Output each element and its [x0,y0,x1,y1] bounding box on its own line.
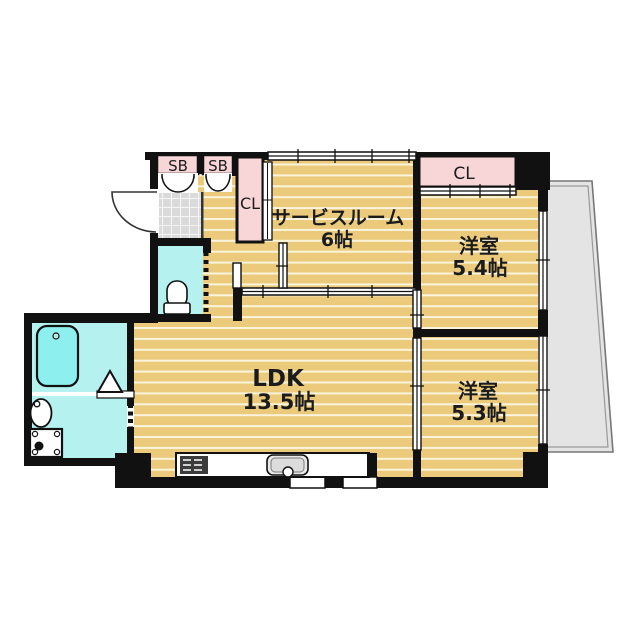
wall-right-1 [538,158,548,211]
ldk-area: 13.5帖 [243,390,316,414]
wall-toilet-right-top [203,238,211,253]
kitchen-sink-drain [283,467,293,477]
pan-corner-1 [32,431,37,436]
wall-bottom [115,477,548,488]
wall-washroom-bottom [24,458,117,466]
wall-right-3 [538,444,548,488]
wall-post-hall [233,288,242,321]
pan-corner-4 [54,449,59,454]
entrance-door-arc [112,192,157,232]
pan-drain [35,442,44,451]
window-bedroom1-tick [536,211,550,310]
pan-corner-3 [32,449,37,454]
service-room-area: 6帖 [321,228,353,251]
wall-genkan-toilet [150,238,206,246]
genkan-step-edge [201,192,204,238]
pan-corner-2 [54,431,59,436]
balcony [548,181,613,452]
washbasin-faucet [34,401,40,407]
kitchen-counter-end [367,453,377,477]
hall-door-panel [233,263,241,288]
floor-plan-page: SB SB CL CL サービスルーム 6帖 洋室 5.4帖 洋室 5.3帖 L… [0,0,640,640]
bathtub-drain [53,333,59,339]
genkan-tile-floor [158,192,202,238]
service-room-name: サービスルーム [272,207,404,229]
western-room-1-name: 洋室 [459,234,499,258]
wall-bath-top [24,313,152,323]
shoe-box-1-label: SB [168,157,188,175]
window-bottom-1 [290,477,325,488]
shoe-box-2-label: SB [208,157,228,175]
wall-post-bottom [413,450,421,478]
window-bottom-2 [343,477,377,488]
closet-hall-label: CL [240,194,260,213]
sb2-door-bg [204,173,232,192]
closet-bedroom-label: CL [453,164,475,184]
toilet-tank [164,303,190,314]
wall-bedroom-divider [418,329,548,337]
ldk-name: LDK [252,366,305,392]
western-room-2-name: 洋室 [458,379,498,403]
floor-plan-drawing: SB SB CL CL サービスルーム 6帖 洋室 5.4帖 洋室 5.3帖 L… [0,0,640,640]
western-room-2-area: 5.3帖 [451,401,506,425]
western-room-1-area: 5.4帖 [452,256,507,280]
wall-washroom-right-lower [127,427,134,457]
window-bedroom2-tick [536,336,550,444]
wall-toilet-bottom [150,314,211,322]
